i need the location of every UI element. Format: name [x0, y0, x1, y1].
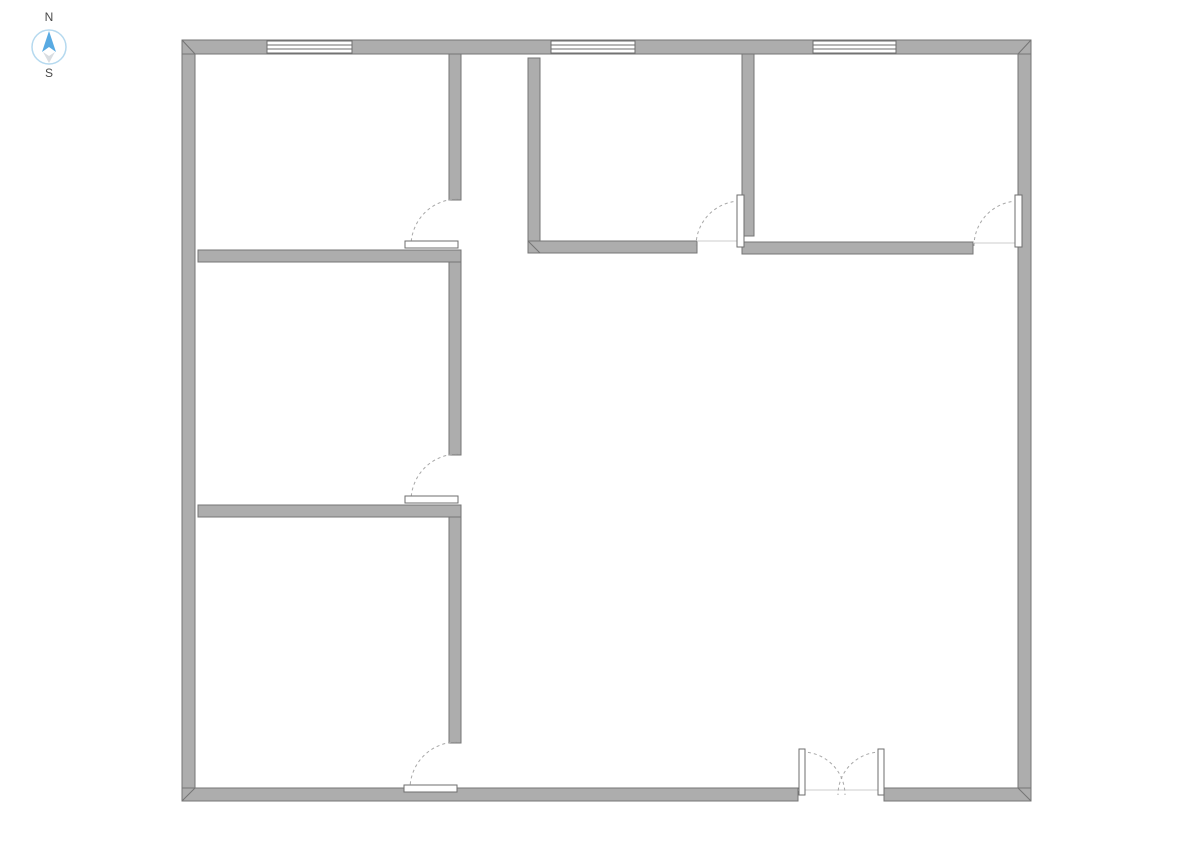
- window-1[interactable]: [267, 41, 352, 53]
- wall-interior-room-a-left[interactable]: [528, 58, 540, 253]
- floor-plan-layer: [182, 40, 1031, 801]
- compass-north-label: N: [45, 10, 54, 24]
- door-left-middle-swing-arc: [411, 454, 458, 501]
- wall-exterior-bottom-left[interactable]: [182, 788, 798, 801]
- door-room-b-leaf[interactable]: [1015, 195, 1022, 247]
- door-left-upper-swing-arc: [411, 199, 458, 246]
- wall-exterior-bottom-right[interactable]: [884, 788, 1031, 801]
- door-left-middle-leaf[interactable]: [405, 496, 458, 503]
- compass-south-label: S: [45, 66, 53, 80]
- floor-plan-canvas[interactable]: N S: [0, 0, 1191, 842]
- door-left-lower-swing-arc: [410, 742, 457, 789]
- double-door-right-leaf-leaf[interactable]: [878, 749, 884, 795]
- window-2[interactable]: [551, 41, 635, 53]
- compass: N S: [32, 10, 66, 80]
- wall-interior-room-b-bottom[interactable]: [742, 242, 973, 254]
- floor-plan-page: N S: [0, 0, 1191, 842]
- wall-interior-left-column-middle[interactable]: [449, 250, 461, 455]
- window-3[interactable]: [813, 41, 896, 53]
- door-room-b-swing-arc: [974, 201, 1019, 246]
- wall-exterior-left[interactable]: [182, 54, 195, 788]
- wall-exterior-right[interactable]: [1018, 54, 1031, 788]
- wall-interior-left-divider-upper[interactable]: [198, 250, 461, 262]
- door-left-upper-leaf[interactable]: [405, 241, 458, 248]
- wall-interior-left-column-bottom[interactable]: [449, 505, 461, 743]
- door-room-a-swing-arc: [696, 201, 741, 246]
- wall-interior-room-a-bottom[interactable]: [528, 241, 697, 253]
- double-door-left-leaf-leaf[interactable]: [799, 749, 805, 795]
- door-room-a-leaf[interactable]: [737, 195, 744, 247]
- wall-interior-left-column-top[interactable]: [449, 54, 461, 200]
- door-left-lower-leaf[interactable]: [404, 785, 457, 792]
- wall-interior-left-divider-lower[interactable]: [198, 505, 461, 517]
